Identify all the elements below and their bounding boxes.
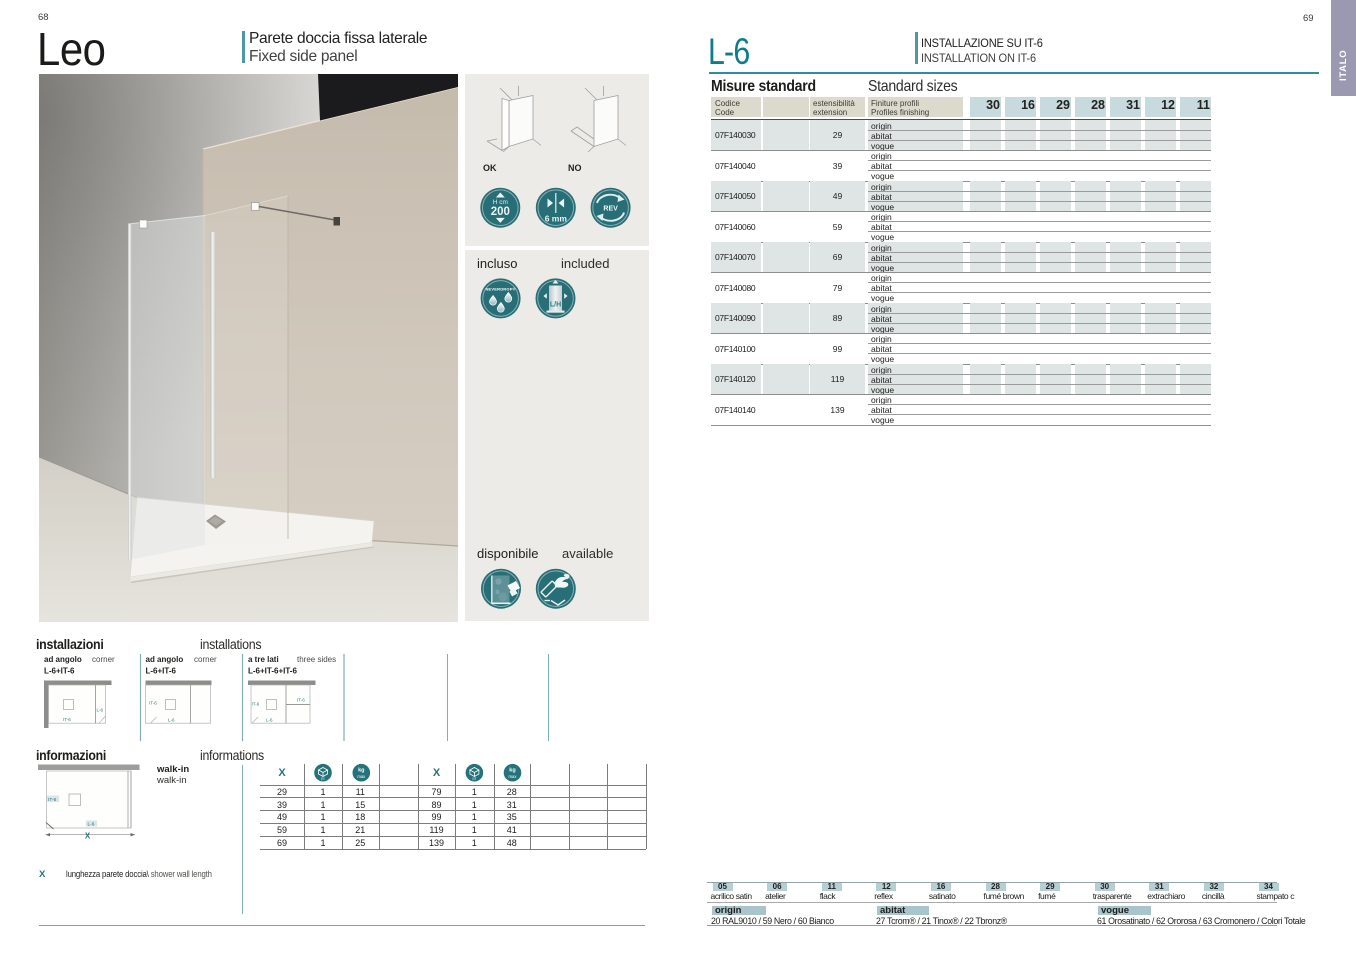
svg-text:corner: corner: [194, 655, 217, 664]
svg-text:kg: kg: [509, 768, 515, 774]
svg-text:pz: pz: [321, 777, 325, 781]
svg-text:H cm: H cm: [493, 199, 508, 206]
svg-text:L/H: L/H: [550, 302, 561, 309]
svg-text:L-6: L-6: [266, 718, 273, 723]
svg-text:IT-6: IT-6: [63, 717, 71, 722]
svg-text:X: X: [85, 832, 91, 841]
svg-text:L-6: L-6: [97, 708, 104, 713]
svg-text:three sides: three sides: [297, 655, 336, 664]
svg-text:ad angolo: ad angolo: [146, 655, 184, 664]
svg-text:pz: pz: [473, 777, 477, 781]
svg-text:6 mm: 6 mm: [545, 214, 568, 224]
svg-text:a tre lati: a tre lati: [248, 655, 279, 664]
svg-text:L-6+IT-6: L-6+IT-6: [44, 667, 75, 676]
svg-text:L-6: L-6: [168, 718, 175, 723]
svg-text:L-6: L-6: [88, 822, 95, 828]
svg-text:IT-6: IT-6: [48, 797, 57, 803]
svg-text:max: max: [509, 774, 518, 779]
svg-text:kg: kg: [358, 768, 364, 774]
svg-text:L-6+IT-6+IT-6: L-6+IT-6+IT-6: [248, 667, 297, 676]
svg-text:NEVERDROP®: NEVERDROP®: [485, 287, 515, 292]
svg-text:max: max: [357, 774, 366, 779]
svg-text:IT-6: IT-6: [149, 701, 157, 706]
svg-text:IT-6: IT-6: [297, 698, 305, 703]
svg-text:ad angolo: ad angolo: [44, 655, 82, 664]
svg-text:OK: OK: [483, 163, 497, 173]
svg-text:REV: REV: [603, 206, 618, 213]
svg-text:NO: NO: [568, 163, 582, 173]
svg-text:L-6+IT-6: L-6+IT-6: [146, 667, 177, 676]
svg-text:IT-6: IT-6: [252, 702, 260, 707]
svg-text:200: 200: [491, 206, 510, 218]
svg-text:corner: corner: [92, 655, 115, 664]
